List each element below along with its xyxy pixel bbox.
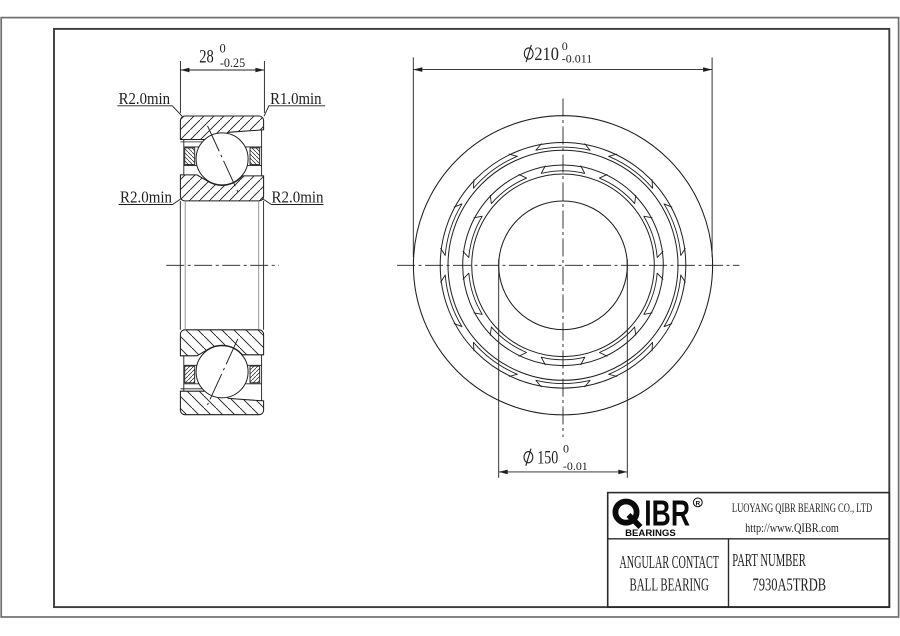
svg-text:R2.0min: R2.0min xyxy=(272,188,324,207)
svg-text:28: 28 xyxy=(199,46,214,67)
svg-text:7930A5TRDB: 7930A5TRDB xyxy=(753,575,827,595)
svg-text:0: 0 xyxy=(563,441,569,455)
svg-text:R: R xyxy=(696,500,701,507)
svg-text:210: 210 xyxy=(534,45,559,65)
svg-text:BEARINGS: BEARINGS xyxy=(625,528,676,539)
svg-text:BALL BEARING: BALL BEARING xyxy=(630,575,709,595)
svg-text:0: 0 xyxy=(220,42,226,56)
svg-text:http://www.QIBR.com: http://www.QIBR.com xyxy=(745,520,839,535)
svg-text:R2.0min: R2.0min xyxy=(119,89,170,108)
svg-text:PART NUMBER: PART NUMBER xyxy=(732,550,806,570)
svg-text:-0.01: -0.01 xyxy=(563,459,588,473)
svg-text:R2.0min: R2.0min xyxy=(120,188,172,207)
svg-text:R1.0min: R1.0min xyxy=(270,89,321,108)
svg-text:LUOYANG QIBR BEARING CO., LTD: LUOYANG QIBR BEARING CO., LTD xyxy=(732,500,872,515)
svg-text:150: 150 xyxy=(537,448,558,468)
svg-text:-0.25: -0.25 xyxy=(220,56,245,70)
svg-text:-0.011: -0.011 xyxy=(562,51,592,65)
svg-text:ANGULAR CONTACT: ANGULAR CONTACT xyxy=(619,552,719,572)
